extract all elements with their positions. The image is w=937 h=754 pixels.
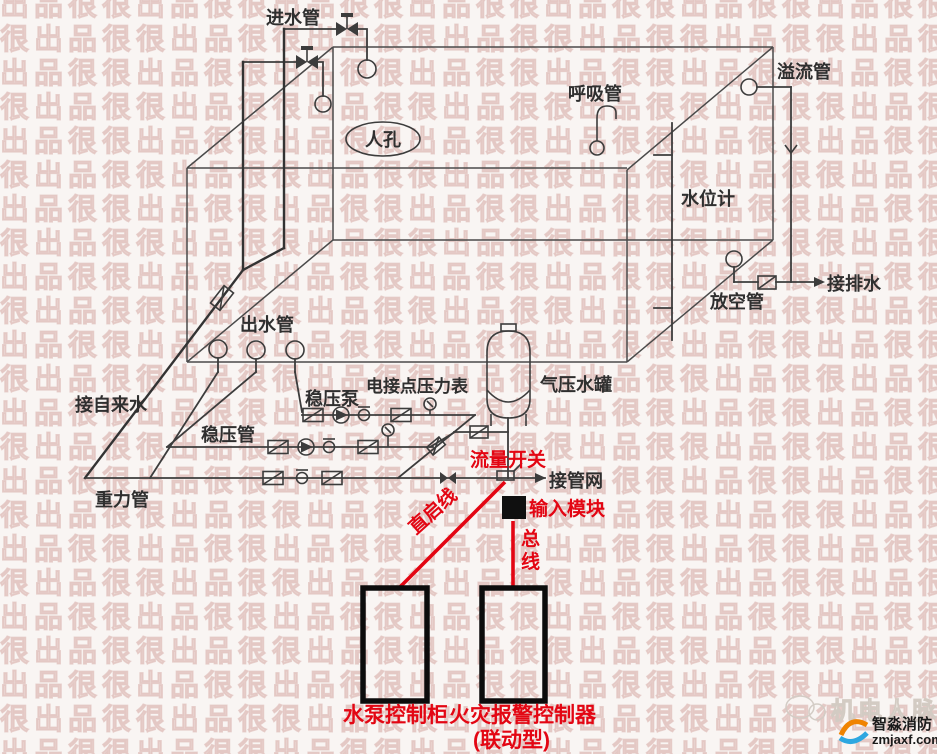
- manhole: 人孔: [346, 122, 420, 156]
- inlet-pipe-label: 进水管: [266, 7, 320, 28]
- water-level-gauge-label: 水位计: [681, 188, 735, 209]
- outlet-pipe-label: 出水管: [240, 314, 294, 335]
- manhole-label: 人孔: [365, 130, 401, 150]
- contact-pressure-gauge-label: 电接点压力表: [366, 376, 469, 396]
- logo-name-text: 智淼消防: [872, 715, 932, 733]
- fire-alarm-controller-label: 火灾报警控制器: [449, 703, 597, 727]
- to-drainage-label: 接排水: [827, 273, 882, 294]
- breather-pipe-label: 呼吸管: [568, 83, 622, 104]
- pump-control-cabinet-box: [363, 588, 427, 701]
- vent-pipe-label: 放空管: [709, 291, 764, 312]
- flow-switch-label: 流量开关: [470, 448, 546, 471]
- stabilizing-pipe-label: 稳压管: [201, 424, 255, 445]
- overflow-pipe-label: 溢流管: [777, 61, 831, 82]
- to-pipe-network-label: 接管网: [549, 470, 603, 491]
- stabilizing-pump-line: 稳压泵 电接点压力表: [302, 376, 475, 423]
- to-tap-water-label: 接自来水: [75, 394, 148, 415]
- water-tank-system-diagram: 人孔 呼吸管 水位计 溢流管: [0, 0, 937, 754]
- stabilizing-pipe-line: 稳压管: [167, 424, 433, 455]
- overflow-pipe: 溢流管: [741, 61, 831, 282]
- vent-pipe-and-drain: 放空管 接排水: [709, 251, 882, 312]
- pump-control-cabinet-label: 水泵控制柜: [343, 703, 448, 727]
- footer-watermark: 机电人脉 智淼消防 zmjaxf.com: [786, 696, 937, 747]
- fire-alarm-controller-type-label: (联动型): [473, 729, 550, 752]
- stabilizing-pump-label: 稳压泵: [305, 388, 359, 409]
- input-module-square: [502, 496, 526, 519]
- logo-site-text: zmjaxf.com: [872, 732, 937, 747]
- fire-alarm-controller-box: [482, 588, 545, 701]
- diagram-page: 出品很很出品很很出品很很出品很很出品很很出品很很出品很很出品很很出品很很很很出品…: [0, 0, 937, 754]
- direct-start-line-label: 直启线: [404, 484, 462, 539]
- red-annotations: 流量开关 直启线 输入模块 总 线 水泵控制柜 火灾报警控制器 (联动型): [343, 448, 606, 752]
- bus-line-label: 总 线: [521, 527, 545, 573]
- breather-pipe: 呼吸管: [568, 83, 622, 155]
- gravity-pipe-label: 重力管: [95, 489, 149, 510]
- pressure-water-tank-label: 气压水罐: [539, 374, 612, 395]
- input-module-label: 输入模块: [529, 497, 606, 520]
